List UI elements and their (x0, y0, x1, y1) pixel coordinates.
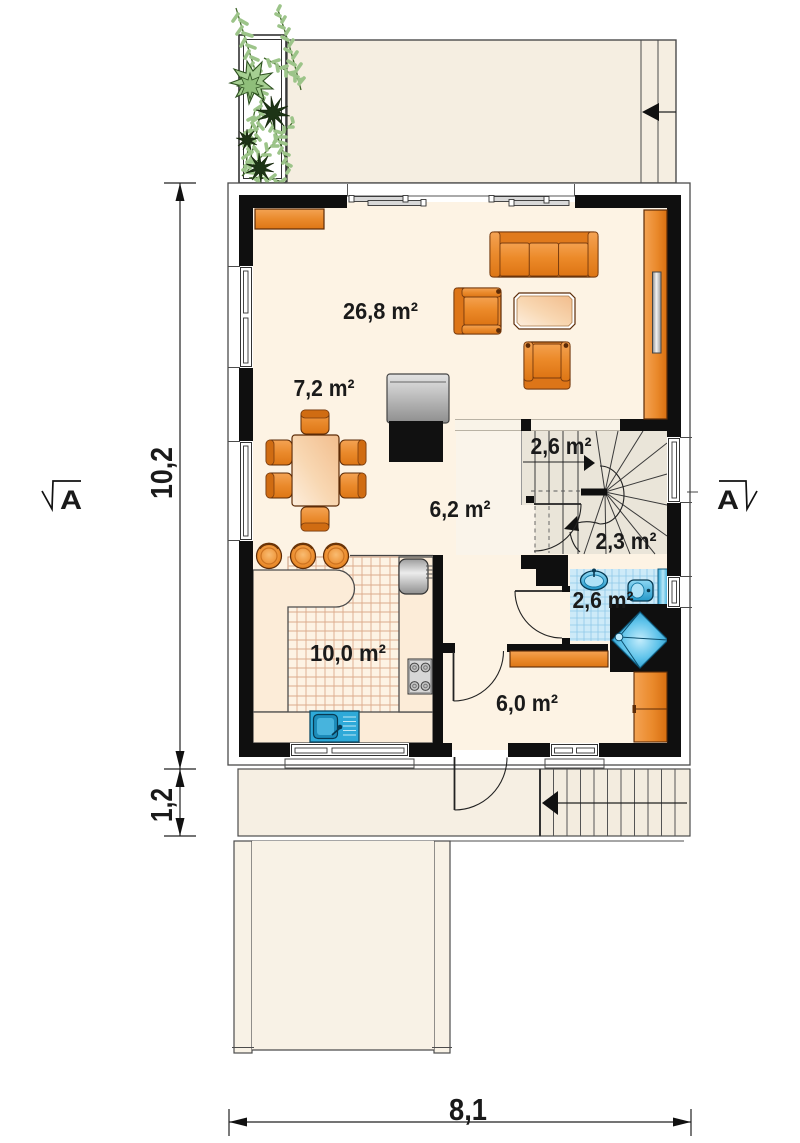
svg-text:8,1: 8,1 (449, 1092, 487, 1127)
svg-text:2,6 m²: 2,6 m² (573, 587, 634, 613)
svg-text:7,2 m²: 7,2 m² (294, 375, 355, 401)
svg-text:2,6 m²: 2,6 m² (531, 433, 592, 459)
svg-text:6,0 m²: 6,0 m² (496, 690, 558, 716)
svg-text:10,2: 10,2 (144, 447, 179, 499)
svg-text:10,0 m²: 10,0 m² (310, 640, 386, 666)
svg-text:A: A (60, 485, 82, 515)
svg-text:2,3 m²: 2,3 m² (596, 528, 657, 554)
svg-text:A: A (717, 485, 739, 515)
svg-text:1,2: 1,2 (144, 788, 179, 822)
svg-text:26,8 m²: 26,8 m² (343, 298, 418, 324)
svg-text:6,2 m²: 6,2 m² (430, 496, 491, 522)
